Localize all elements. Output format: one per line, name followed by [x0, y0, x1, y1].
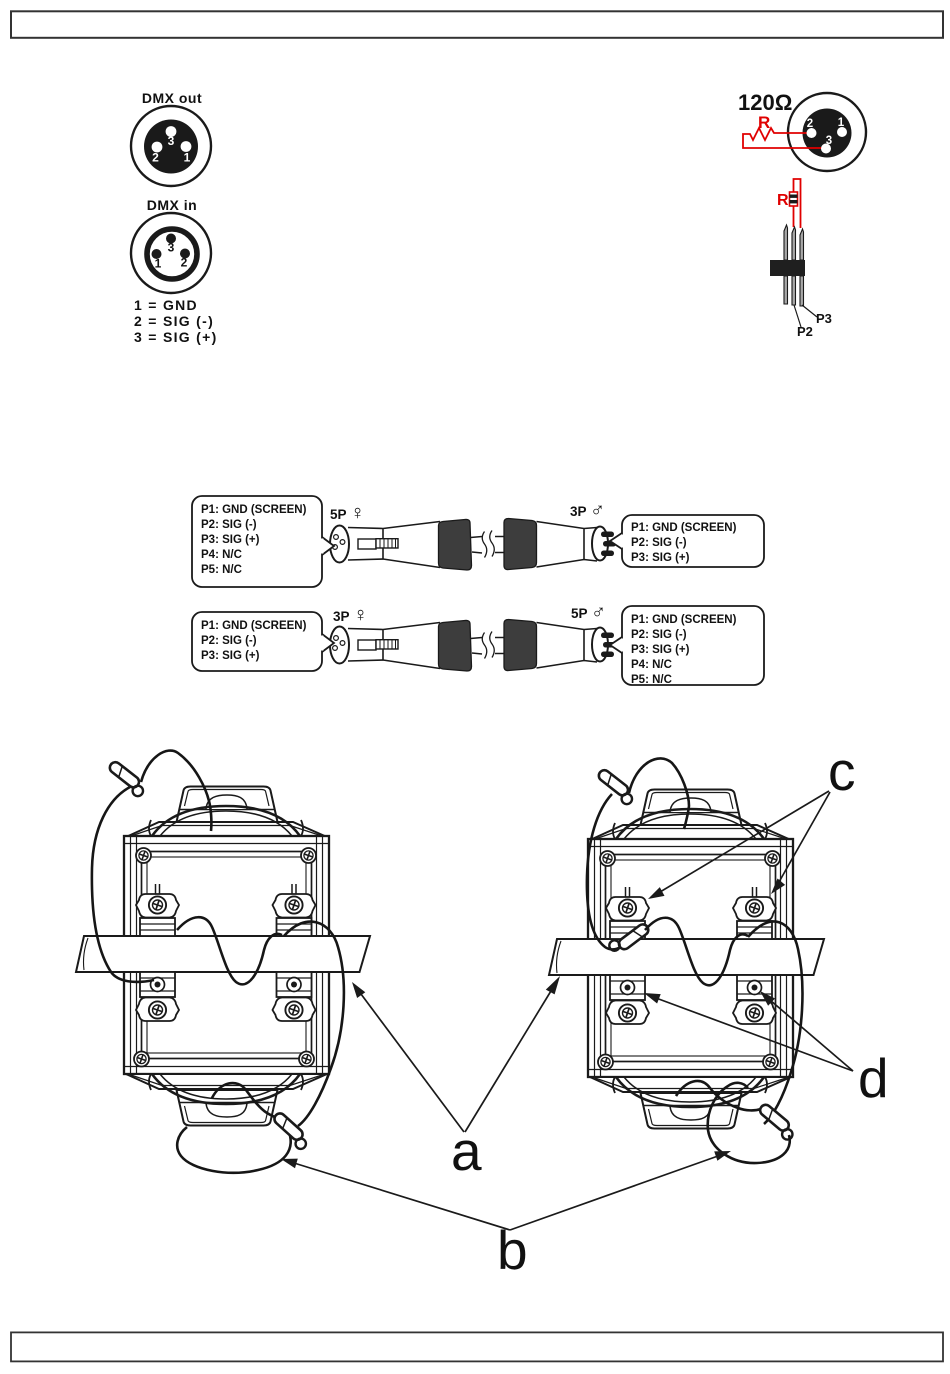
svg-text:P2: SIG (-): P2: SIG (-) [631, 537, 687, 549]
svg-text:P2: P2 [797, 324, 813, 339]
svg-text:3P ♀: 3P ♀ [333, 604, 368, 626]
svg-text:d: d [858, 1047, 889, 1109]
svg-text:P1: GND (SCREEN): P1: GND (SCREEN) [631, 614, 737, 626]
svg-text:P4: N/C: P4: N/C [631, 659, 672, 671]
svg-text:3: 3 [168, 134, 175, 148]
svg-text:P2: SIG (-): P2: SIG (-) [201, 519, 257, 531]
svg-text:1 = GND: 1 = GND [134, 297, 198, 313]
svg-text:P5: N/C: P5: N/C [631, 674, 672, 686]
svg-text:P3: SIG (+): P3: SIG (+) [201, 534, 260, 546]
svg-text:2: 2 [807, 118, 813, 130]
svg-text:3P ♂: 3P ♂ [570, 499, 605, 521]
svg-text:c: c [828, 740, 856, 802]
svg-text:3 = SIG (+): 3 = SIG (+) [134, 329, 218, 345]
svg-text:P1: GND (SCREEN): P1: GND (SCREEN) [631, 522, 737, 534]
svg-text:P1: GND (SCREEN): P1: GND (SCREEN) [201, 620, 307, 632]
svg-text:P2: SIG (-): P2: SIG (-) [201, 635, 257, 647]
svg-text:P3: SIG (+): P3: SIG (+) [631, 644, 690, 656]
svg-text:DMX in: DMX in [147, 197, 197, 213]
svg-text:1: 1 [184, 151, 191, 165]
svg-text:P3: P3 [816, 311, 832, 326]
svg-text:120Ω: 120Ω [738, 90, 792, 115]
svg-text:1: 1 [838, 117, 845, 129]
svg-text:2: 2 [181, 256, 188, 270]
svg-text:P1: GND (SCREEN): P1: GND (SCREEN) [201, 504, 307, 516]
svg-text:2: 2 [152, 151, 159, 165]
svg-text:1: 1 [155, 257, 162, 271]
svg-text:P3: SIG (+): P3: SIG (+) [631, 552, 690, 564]
svg-text:2 = SIG (-): 2 = SIG (-) [134, 313, 214, 329]
svg-text:P5: N/C: P5: N/C [201, 564, 242, 576]
svg-text:DMX out: DMX out [142, 90, 202, 106]
svg-text:5P ♀: 5P ♀ [330, 502, 365, 524]
svg-text:3: 3 [168, 241, 175, 255]
svg-text:5P ♂: 5P ♂ [571, 601, 606, 623]
svg-text:P3: SIG (+): P3: SIG (+) [201, 650, 260, 662]
svg-text:R: R [777, 192, 789, 209]
svg-text:3: 3 [826, 135, 832, 147]
svg-text:P4: N/C: P4: N/C [201, 549, 242, 561]
svg-text:P2: SIG (-): P2: SIG (-) [631, 629, 687, 641]
